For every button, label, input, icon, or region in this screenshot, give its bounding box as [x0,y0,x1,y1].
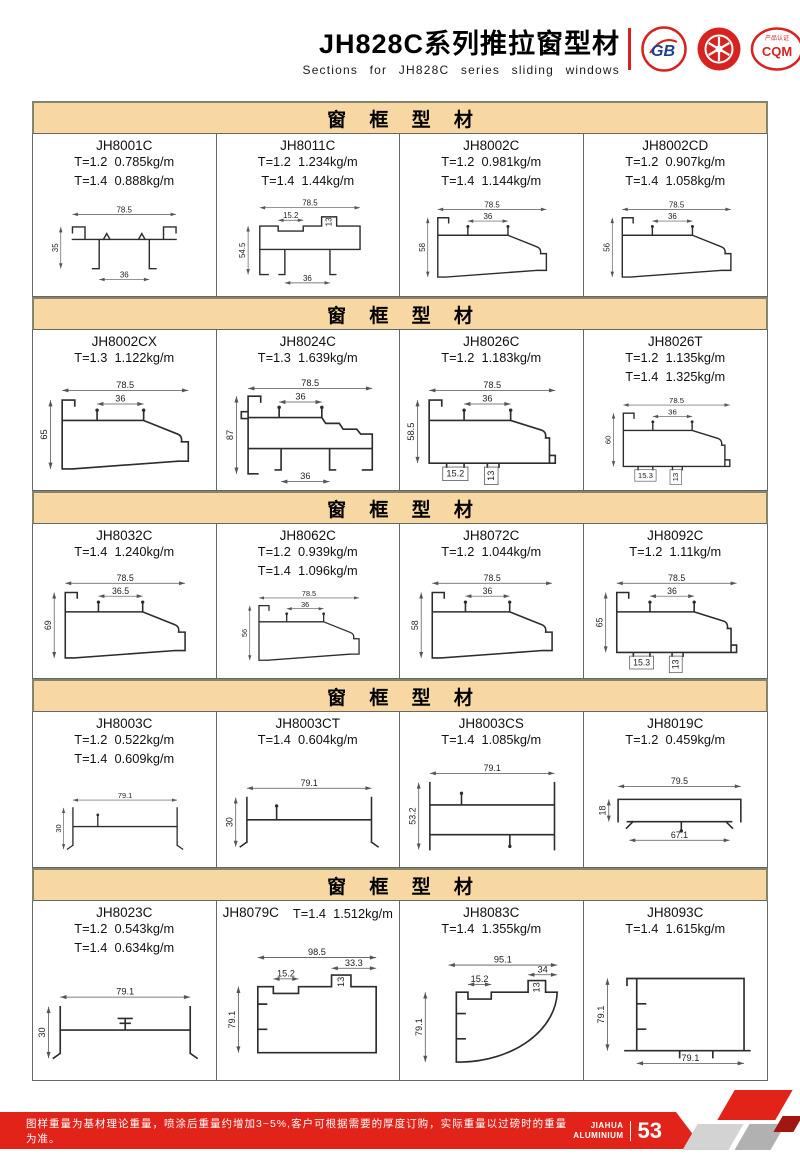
profile-section-svg: 78.53658 [402,191,581,293]
section-row: JH8023C T=1.2 0.543kg/m T=1.4 0.634kg/m … [32,901,768,1081]
profile-drawing: 79.130 [217,750,400,867]
profile-drawing: 78.53658 [400,190,583,296]
profile-section-svg: 15.31378.53665 [586,563,766,675]
profile-code: JH8002CX [33,330,216,349]
dim-label: 98.5 [308,947,326,957]
logo-shape-gray-light [682,1124,743,1150]
quality-seal-icon [695,25,743,73]
profile-header-inline: JH8079C T=1.4 1.512kg/m [217,901,400,924]
page-number: 53 [638,1118,662,1144]
section-header: 窗 框 型 材 [32,297,768,330]
profile-weight: T=1.4 0.888kg/m [33,172,216,191]
footer-divider [630,1121,631,1141]
profile-section-svg: 78.53656 [586,191,766,293]
dim-label: 30 [54,824,63,832]
profile-section-svg: 78.515.21354.536 [219,191,398,293]
profile-cell: JH8032C T=1.4 1.240kg/m 78.536.569 [33,524,217,678]
dim-label: 13 [670,659,680,669]
dim-label: 58.5 [406,422,416,440]
profile-cell: JH8001C T=1.2 0.785kg/m T=1.4 0.888kg/m … [33,134,217,296]
profile-code: JH8003CT [217,712,400,731]
certification-logos: GB 产品认证 CQM [640,25,800,73]
profile-weight: T=1.4 1.096kg/m [217,562,400,581]
dim-label: 79.1 [596,1005,606,1023]
dim-label: 65 [594,617,604,627]
section-row: JH8002CX T=1.3 1.122kg/m 78.53665 JH8024… [32,330,768,491]
dim-label: 36 [300,471,310,481]
dim-label: 79.1 [414,1018,424,1036]
profile-section-svg: 79.153.2 [402,751,581,864]
profile-section-svg: 78.53658 [402,563,581,675]
profile-section-svg: 78.53656 [219,581,398,675]
profile-cell: JH8079C T=1.4 1.512kg/m 1398.515.233.379… [217,901,401,1080]
profile-drawing: 1398.515.233.379.1 [217,924,400,1080]
profile-drawing: 79.153.2 [400,750,583,867]
profile-drawing: 79.130 [33,768,216,867]
profile-section-svg: 15.31378.53660 [586,387,766,487]
profile-cell: JH8019C T=1.2 0.459kg/m 79.51867.1 [584,712,768,867]
dim-label: 54.5 [238,242,247,258]
profile-drawing: 1395.115.23479.1 [400,939,583,1080]
profile-weight: T=1.2 0.522kg/m [33,731,216,750]
profile-cell: JH8002CD T=1.2 0.907kg/m T=1.4 1.058kg/m… [584,134,768,296]
section-header: 窗 框 型 材 [32,101,768,134]
dim-label: 79.1 [300,777,317,787]
dim-label: 95.1 [494,954,512,964]
profile-code: JH8079C [223,905,279,924]
profile-weight: T=1.4 0.604kg/m [217,731,400,750]
dim-label: 36.5 [112,585,129,595]
profile-code: JH8019C [584,712,768,731]
logo-shape-dark-red [773,1116,800,1132]
section-header: 窗 框 型 材 [32,679,768,712]
profile-weight: T=1.2 0.907kg/m [584,153,768,172]
profile-cell: JH8003CS T=1.4 1.085kg/m 79.153.2 [400,712,584,867]
profile-catalog-table: 窗 框 型 材 JH8001C T=1.2 0.785kg/m T=1.4 0.… [32,101,768,1081]
profile-cell: JH8023C T=1.2 0.543kg/m T=1.4 0.634kg/m … [33,901,217,1080]
dim-label: 53.2 [407,807,417,824]
profile-drawing: 78.53658 [400,562,583,678]
profile-weight: T=1.2 1.135kg/m [584,349,768,368]
profile-weight: T=1.2 1.234kg/m [217,153,400,172]
profile-code: JH8001C [33,134,216,153]
brand-logo-mark [680,1086,798,1162]
profile-drawing: 79.130 [33,957,216,1080]
dim-label: 87 [225,429,235,439]
profile-drawing: 78.53665 [33,368,216,490]
dim-label: 15.2 [446,468,464,478]
dim-label: 60 [603,435,612,444]
dim-label: 78.5 [484,573,501,583]
dim-label: 18 [597,805,607,815]
section-title: 窗 框 型 材 [318,683,482,710]
page-title: JH828C系列推拉窗型材 [0,22,620,61]
dim-label: 56 [602,242,611,251]
profile-code: JH8011C [217,134,400,153]
dim-label: 78.5 [301,589,315,598]
profile-code: JH8003CS [400,712,583,731]
profile-weight: T=1.2 0.459kg/m [584,731,768,750]
profile-weight: T=1.3 1.639kg/m [217,349,400,368]
dim-label: 79.1 [681,1052,699,1062]
profile-code: JH8002C [400,134,583,153]
profile-code: JH8024C [217,330,400,349]
profile-weight: T=1.2 1.183kg/m [400,349,583,368]
section-header: 窗 框 型 材 [32,868,768,901]
profile-cell: JH8002CX T=1.3 1.122kg/m 78.53665 [33,330,217,490]
section-row: JH8003C T=1.2 0.522kg/m T=1.4 0.609kg/m … [32,712,768,868]
dim-label: 78.5 [302,199,318,208]
page-subtitle: Sections for JH828C series sliding windo… [0,63,620,77]
profile-cell: JH8024C T=1.3 1.639kg/m 78.5368736 [217,330,401,490]
dim-label: 13 [486,470,496,480]
footer-note: 图样重量为基材理论重量，喷涂后重量约增加3~5%,客户可根据需要的厚度订购，实际… [0,1116,573,1146]
dim-label: 15.2 [276,968,294,978]
profile-weight: T=1.4 1.355kg/m [400,920,583,939]
profile-drawing: 78.536.569 [33,562,216,678]
section-title: 窗 框 型 材 [318,105,482,132]
profile-drawing: 78.515.21354.536 [217,190,400,296]
dim-label: 79.5 [670,776,687,786]
dim-label: 15.2 [471,974,489,984]
profile-weight: T=1.3 1.122kg/m [33,349,216,368]
dim-label: 13 [671,473,680,482]
dim-label: 79.1 [227,1010,237,1028]
profile-section-svg: 15.21378.53658.5 [402,369,581,487]
profile-code: JH8083C [400,901,583,920]
dim-label: 78.5 [668,200,684,209]
dim-label: 78.5 [668,573,685,583]
dim-label: 36 [483,585,493,595]
profile-weight: T=1.4 0.609kg/m [33,750,216,769]
footer-bar: 图样重量为基材理论重量，喷涂后重量约增加3~5%,客户可根据需要的厚度订购，实际… [0,1112,704,1149]
dim-label: 15.3 [633,657,650,667]
dim-label: 13 [324,217,333,226]
brand-bottom: ALUMINIUM [573,1131,623,1141]
profile-cell: JH8072C T=1.2 1.044kg/m 78.53658 [400,524,584,678]
dim-label: 78.5 [484,200,500,209]
profile-section-svg: 78.536.569 [35,563,214,675]
dim-label: 79.1 [484,763,501,773]
dim-label: 78.5 [483,380,501,390]
dim-label: 78.5 [116,380,134,390]
profile-weight: T=1.4 1.512kg/m [293,905,393,924]
section-title: 窗 框 型 材 [318,301,482,328]
dim-label: 36 [668,212,677,221]
profile-drawing: 78.53536 [33,190,216,296]
dim-label: 69 [43,620,53,630]
dim-label: 36 [301,600,309,609]
profile-weight: T=1.2 0.939kg/m [217,543,400,562]
profile-code: JH8032C [33,524,216,543]
dim-label: 67.1 [670,829,687,839]
profile-weight: T=1.4 1.44kg/m [217,172,400,191]
cqm-caption: 产品认证 [765,34,789,42]
profile-weight: T=1.4 1.615kg/m [584,920,768,939]
dim-label: 36 [115,393,125,403]
profile-code: JH8062C [217,524,400,543]
profile-cell: JH8083C T=1.4 1.355kg/m 1395.115.23479.1 [400,901,584,1080]
profile-drawing: 15.31378.53665 [584,562,768,678]
dim-label: 78.5 [301,378,319,388]
section-row: JH8032C T=1.4 1.240kg/m 78.536.569 JH806… [32,524,768,679]
section-row: JH8001C T=1.2 0.785kg/m T=1.4 0.888kg/m … [32,134,768,297]
profile-cell: JH8092C T=1.2 1.11kg/m 15.31378.53665 [584,524,768,678]
page-header: JH828C系列推拉窗型材 Sections for JH828C series… [0,22,620,77]
dim-label: 78.5 [669,396,684,405]
profile-section-svg: 1398.515.233.379.1 [219,925,398,1077]
profile-weight: T=1.4 1.240kg/m [33,543,216,562]
brand-name: JIAHUA ALUMINIUM [573,1121,623,1140]
profile-weight: T=1.2 0.785kg/m [33,153,216,172]
profile-cell: JH8026C T=1.2 1.183kg/m 15.21378.53658.5 [400,330,584,490]
profile-section-svg: 79.130 [219,751,398,864]
dim-label: 65 [39,429,49,439]
profile-section-svg: 78.53665 [35,369,214,487]
profile-weight: T=1.2 0.543kg/m [33,920,216,939]
profile-drawing: 15.21378.53658.5 [400,368,583,490]
profile-weight: T=1.2 0.981kg/m [400,153,583,172]
dim-label: 34 [538,964,548,974]
cqm-certification-icon: 产品认证 CQM [750,25,800,73]
dim-label: 36 [667,585,677,595]
dim-label: 56 [240,629,249,637]
profile-drawing: 79.51867.1 [584,750,768,867]
dim-label: 36 [120,271,129,280]
profile-code: JH8003C [33,712,216,731]
dim-label: 79.1 [116,987,134,997]
profile-section-svg: 79.130 [35,958,214,1077]
profile-code: JH8093C [584,901,768,920]
dim-label: 33.3 [344,957,362,967]
dim-label: 36 [482,393,492,403]
dim-label: 36 [484,212,493,221]
profile-weight: T=1.4 1.085kg/m [400,731,583,750]
profile-code: JH8023C [33,901,216,920]
dim-label: 30 [224,817,234,827]
dim-label: 36 [668,408,677,417]
profile-code: JH8026C [400,330,583,349]
dim-label: 15.2 [282,211,297,220]
profile-section-svg: 78.53536 [35,191,214,293]
dim-label: 13 [336,976,346,986]
profile-weight: T=1.4 1.325kg/m [584,368,768,387]
dim-label: 13 [532,982,542,992]
profile-drawing: 79.179.1 [584,939,768,1080]
profile-section-svg: 78.5368736 [219,369,398,487]
dim-label: 30 [37,1027,47,1037]
dim-label: 36 [303,274,312,283]
dim-label: 78.5 [117,573,134,583]
profile-cell: JH8002C T=1.2 0.981kg/m T=1.4 1.144kg/m … [400,134,584,296]
profile-drawing: 78.53656 [217,580,400,678]
profile-section-svg: 1395.115.23479.1 [402,940,581,1077]
profile-cell: JH8062C T=1.2 0.939kg/m T=1.4 1.096kg/m … [217,524,401,678]
section-header: 窗 框 型 材 [32,491,768,524]
profile-code: JH8002CD [584,134,768,153]
section-title: 窗 框 型 材 [318,495,482,522]
profile-section-svg: 79.179.1 [586,940,766,1077]
gb-certification-icon: GB [640,25,688,73]
profile-drawing: 15.31378.53660 [584,386,768,490]
dim-label: 36 [295,391,305,401]
profile-code: JH8092C [584,524,768,543]
profile-section-svg: 79.130 [35,769,214,864]
profile-cell: JH8093C T=1.4 1.615kg/m 79.179.1 [584,901,768,1080]
profile-weight: T=1.2 1.044kg/m [400,543,583,562]
gb-logo-text: GB [651,43,675,60]
profile-weight: T=1.2 1.11kg/m [584,543,768,562]
profile-cell: JH8026T T=1.2 1.135kg/m T=1.4 1.325kg/m … [584,330,768,490]
section-title: 窗 框 型 材 [318,872,482,899]
profile-drawing: 78.5368736 [217,368,400,490]
profile-code: JH8072C [400,524,583,543]
profile-section-svg: 79.51867.1 [586,751,766,864]
profile-code: JH8026T [584,330,768,349]
profile-cell: JH8011C T=1.2 1.234kg/m T=1.4 1.44kg/m 7… [217,134,401,296]
profile-weight: T=1.4 0.634kg/m [33,939,216,958]
dim-label: 15.3 [637,471,652,480]
profile-cell: JH8003CT T=1.4 0.604kg/m 79.130 [217,712,401,867]
profile-weight: T=1.4 1.058kg/m [584,172,768,191]
dim-label: 58 [410,620,420,630]
catalog-page: JH828C系列推拉窗型材 Sections for JH828C series… [0,0,800,1167]
cqm-logo-text: CQM [762,44,792,59]
dim-label: 78.5 [117,205,133,214]
profile-cell: JH8003C T=1.2 0.522kg/m T=1.4 0.609kg/m … [33,712,217,867]
dim-label: 79.1 [118,791,132,800]
dim-label: 58 [418,242,427,251]
profile-drawing: 78.53656 [584,190,768,296]
header-divider [628,28,631,70]
profile-weight: T=1.4 1.144kg/m [400,172,583,191]
brand-top: JIAHUA [573,1121,623,1131]
dim-label: 35 [51,243,60,252]
